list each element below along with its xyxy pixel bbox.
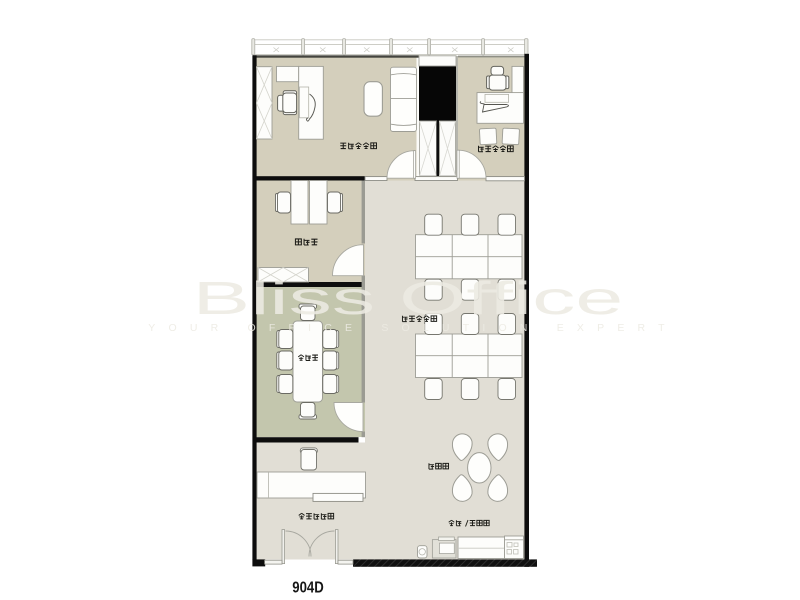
svg-text:YOUR OFFICE SOLUTION EXPERT: YOUR OFFICE SOLUTION EXPERT [148,322,677,334]
svg-text:904D: 904D [292,580,323,597]
svg-text:Bliss Office: Bliss Office [193,272,624,324]
